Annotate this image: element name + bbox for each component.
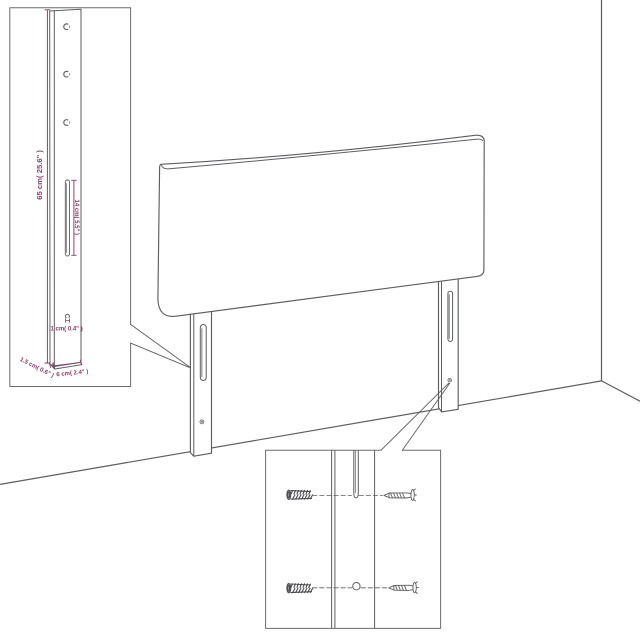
svg-text:14 cm( 5.5" ): 14 cm( 5.5" ) <box>73 200 79 236</box>
svg-text:1 cm( 0.4" ): 1 cm( 0.4" ) <box>51 327 83 333</box>
svg-text:6 cm( 2.4" ): 6 cm( 2.4" ) <box>56 369 89 378</box>
svg-text:65 cm( 25.6" ): 65 cm( 25.6" ) <box>35 150 44 200</box>
svg-text:1.5 cm( 0.6" ): 1.5 cm( 0.6" ) <box>19 357 55 379</box>
